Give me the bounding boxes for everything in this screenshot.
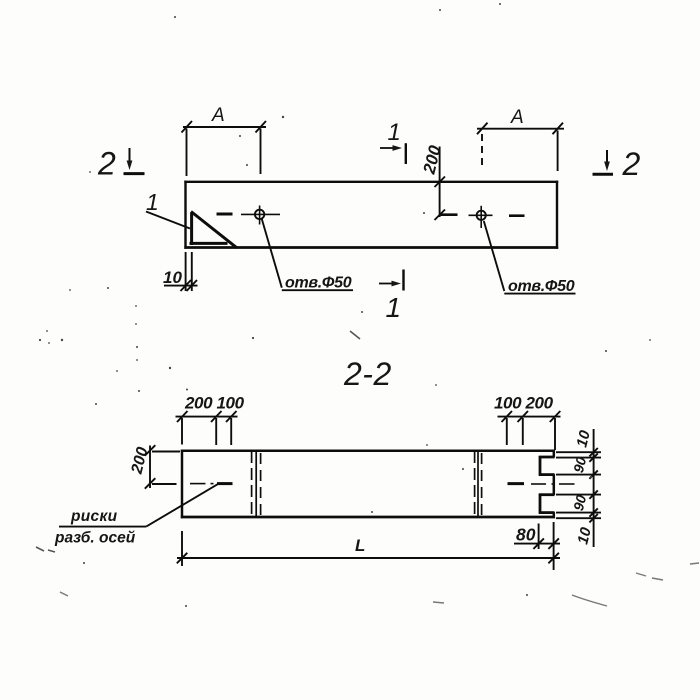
svg-text:80: 80 bbox=[516, 525, 536, 545]
svg-text:1: 1 bbox=[146, 189, 159, 215]
svg-text:200 100: 200 100 bbox=[184, 394, 245, 413]
svg-text:10: 10 bbox=[573, 428, 594, 449]
svg-text:A: A bbox=[211, 105, 225, 126]
svg-text:90: 90 bbox=[570, 493, 589, 512]
svg-text:2-2: 2-2 bbox=[343, 356, 392, 392]
svg-text:2: 2 bbox=[622, 146, 641, 182]
svg-text:A: A bbox=[510, 107, 524, 128]
svg-text:1: 1 bbox=[386, 292, 402, 323]
svg-text:100 200: 100 200 bbox=[494, 394, 554, 413]
svg-text:разб. осей: разб. осей bbox=[54, 530, 136, 547]
svg-text:10: 10 bbox=[574, 525, 595, 546]
svg-text:200: 200 bbox=[419, 143, 445, 177]
svg-text:риски: риски bbox=[70, 508, 118, 525]
svg-text:L: L bbox=[355, 536, 365, 555]
svg-text:отв.Ф50: отв.Ф50 bbox=[508, 278, 575, 295]
svg-text:отв.Ф50: отв.Ф50 bbox=[285, 275, 352, 292]
svg-text:2: 2 bbox=[97, 146, 116, 182]
svg-text:200: 200 bbox=[128, 445, 151, 476]
svg-text:10: 10 bbox=[163, 268, 182, 287]
svg-text:1: 1 bbox=[388, 119, 401, 146]
